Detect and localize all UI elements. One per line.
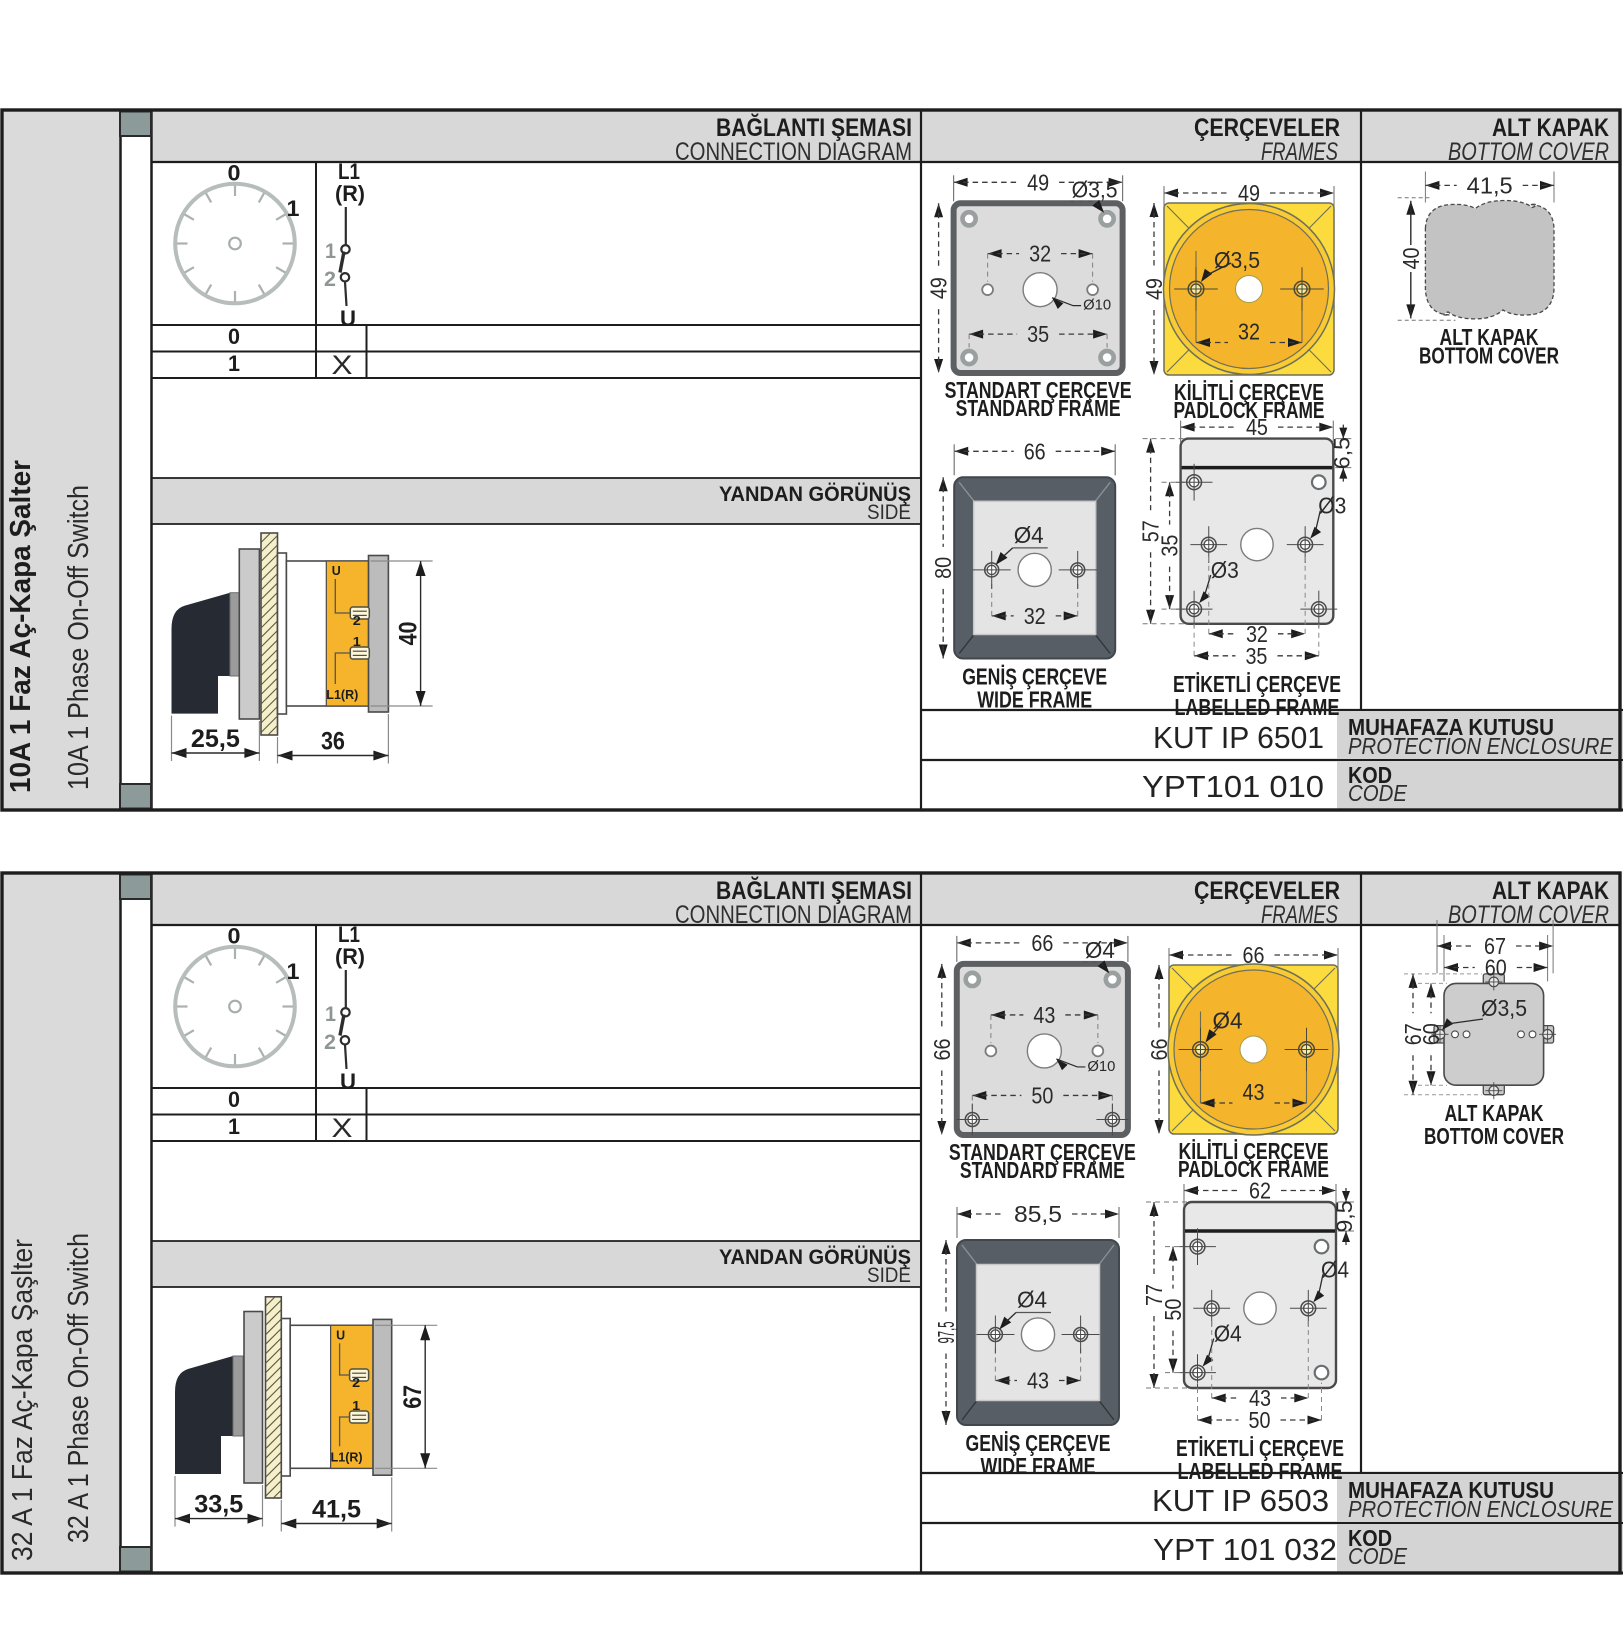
svg-text:32: 32 [1024,603,1046,629]
svg-text:Ø3,5: Ø3,5 [1214,247,1260,273]
svg-text:Ø4: Ø4 [1085,937,1115,963]
svg-text:50: 50 [1031,1082,1053,1108]
svg-text:49: 49 [1027,169,1049,195]
svg-text:85,5: 85,5 [1014,1201,1062,1227]
svg-text:U: U [340,1069,356,1094]
svg-text:0: 0 [228,324,240,349]
svg-text:43: 43 [1243,1079,1265,1105]
svg-text:10A 1 Faz Aç-Kapa Şalter: 10A 1 Faz Aç-Kapa Şalter [5,460,37,793]
svg-text:CODE: CODE [1348,1543,1408,1569]
svg-text:66: 66 [1031,930,1053,956]
svg-text:40: 40 [1398,248,1424,270]
svg-text:X: X [332,1113,353,1143]
svg-text:1: 1 [287,959,300,984]
svg-text:BOTTOM COVER: BOTTOM COVER [1448,138,1609,166]
svg-text:33,5: 33,5 [194,1491,243,1519]
svg-text:U: U [336,1327,345,1342]
svg-text:Ø4: Ø4 [1014,522,1044,548]
svg-text:32 A 1 Phase On-Off Switch: 32 A 1 Phase On-Off Switch [63,1233,95,1543]
svg-text:2: 2 [324,1031,336,1054]
svg-text:Ø3,5: Ø3,5 [1072,176,1118,202]
svg-text:97,5: 97,5 [933,1322,959,1344]
svg-text:Ø4: Ø4 [1017,1287,1047,1313]
svg-text:FRAMES: FRAMES [1261,138,1338,166]
svg-text:35: 35 [1157,535,1183,557]
svg-text:66: 66 [1146,1039,1172,1061]
svg-text:WIDE FRAME: WIDE FRAME [981,1453,1096,1479]
svg-text:1: 1 [325,240,336,263]
svg-text:66: 66 [1024,438,1046,464]
svg-text:L1(R): L1(R) [331,1450,363,1464]
svg-text:66: 66 [929,1038,955,1060]
svg-text:X: X [332,350,353,380]
svg-text:50: 50 [1249,1407,1271,1433]
svg-text:1: 1 [287,196,300,221]
svg-text:40: 40 [395,622,423,646]
svg-text:FRAMES: FRAMES [1261,901,1338,929]
svg-text:0: 0 [228,1087,240,1112]
svg-text:Ø3: Ø3 [1211,557,1239,583]
svg-text:YPT101 010: YPT101 010 [1142,769,1324,804]
svg-text:41,5: 41,5 [1467,172,1513,198]
svg-text:BOTTOM COVER: BOTTOM COVER [1419,343,1559,369]
svg-text:2: 2 [353,613,361,628]
svg-text:9,5: 9,5 [1332,1201,1357,1233]
svg-text:STANDARD FRAME: STANDARD FRAME [956,395,1121,421]
svg-text:1: 1 [228,1114,240,1139]
svg-text:67: 67 [399,1385,427,1409]
svg-text:(R): (R) [335,944,365,969]
svg-text:50: 50 [1160,1299,1186,1321]
svg-text:43: 43 [1033,1002,1055,1028]
svg-text:49: 49 [926,277,952,299]
svg-text:80: 80 [930,557,956,579]
svg-text:35: 35 [1245,643,1267,669]
svg-text:BOTTOM COVER: BOTTOM COVER [1424,1123,1564,1149]
svg-text:CONNECTION DIAGRAM: CONNECTION DIAGRAM [675,901,912,929]
svg-text:Ø10: Ø10 [1087,1058,1115,1075]
svg-text:32 A 1 Faz Aç-Kapa Şaşlter: 32 A 1 Faz Aç-Kapa Şaşlter [7,1239,39,1561]
svg-text:CONNECTION DIAGRAM: CONNECTION DIAGRAM [675,138,912,166]
svg-text:43: 43 [1027,1368,1049,1394]
svg-text:Ø3,5: Ø3,5 [1481,995,1527,1021]
svg-text:BOTTOM COVER: BOTTOM COVER [1448,901,1609,929]
svg-text:Ø10: Ø10 [1083,297,1111,314]
svg-text:32: 32 [1029,241,1051,267]
svg-text:CODE: CODE [1348,780,1408,806]
svg-text:LABELLED FRAME: LABELLED FRAME [1178,1458,1343,1484]
svg-text:10A 1 Phase On-Off Switch: 10A 1 Phase On-Off Switch [63,485,95,790]
svg-text:YPT 101 032: YPT 101 032 [1153,1532,1337,1567]
svg-text:Ø4: Ø4 [1214,1321,1242,1347]
svg-text:U: U [332,563,341,578]
svg-text:0: 0 [228,924,241,949]
svg-text:49: 49 [1238,180,1260,206]
svg-text:2: 2 [324,268,336,291]
svg-text:LABELLED FRAME: LABELLED FRAME [1174,694,1339,720]
svg-text:1: 1 [352,1398,360,1413]
svg-text:L1(R): L1(R) [326,688,358,702]
svg-text:SIDE: SIDE [867,1264,911,1287]
svg-text:KUT IP 6501: KUT IP 6501 [1153,720,1324,755]
svg-text:SIDE: SIDE [867,501,911,524]
svg-text:1: 1 [353,634,361,649]
svg-text:Ø3: Ø3 [1318,493,1346,519]
svg-text:KUT IP 6503: KUT IP 6503 [1152,1483,1329,1518]
svg-text:66: 66 [1243,942,1265,968]
svg-text:Ø4: Ø4 [1321,1256,1349,1282]
svg-text:(R): (R) [335,181,365,206]
svg-text:0: 0 [228,161,241,186]
svg-text:25,5: 25,5 [191,725,240,753]
svg-text:PROTECTION ENCLOSURE: PROTECTION ENCLOSURE [1348,733,1614,759]
svg-text:62: 62 [1249,1178,1271,1204]
svg-text:36: 36 [321,728,345,756]
svg-text:2: 2 [352,1375,360,1390]
svg-text:WIDE FRAME: WIDE FRAME [977,687,1092,713]
svg-text:41,5: 41,5 [312,1496,361,1524]
svg-text:6,5: 6,5 [1329,437,1354,469]
svg-text:PROTECTION ENCLOSURE: PROTECTION ENCLOSURE [1348,1496,1614,1522]
svg-text:STANDARD FRAME: STANDARD FRAME [960,1157,1125,1183]
svg-text:45: 45 [1246,414,1268,440]
svg-text:1: 1 [325,1003,336,1026]
svg-text:1: 1 [228,351,240,376]
svg-text:60: 60 [1485,955,1507,981]
svg-text:U: U [340,306,356,331]
svg-text:49: 49 [1141,278,1167,300]
svg-text:60: 60 [1418,1023,1444,1045]
svg-text:35: 35 [1027,321,1049,347]
svg-text:32: 32 [1238,319,1260,345]
